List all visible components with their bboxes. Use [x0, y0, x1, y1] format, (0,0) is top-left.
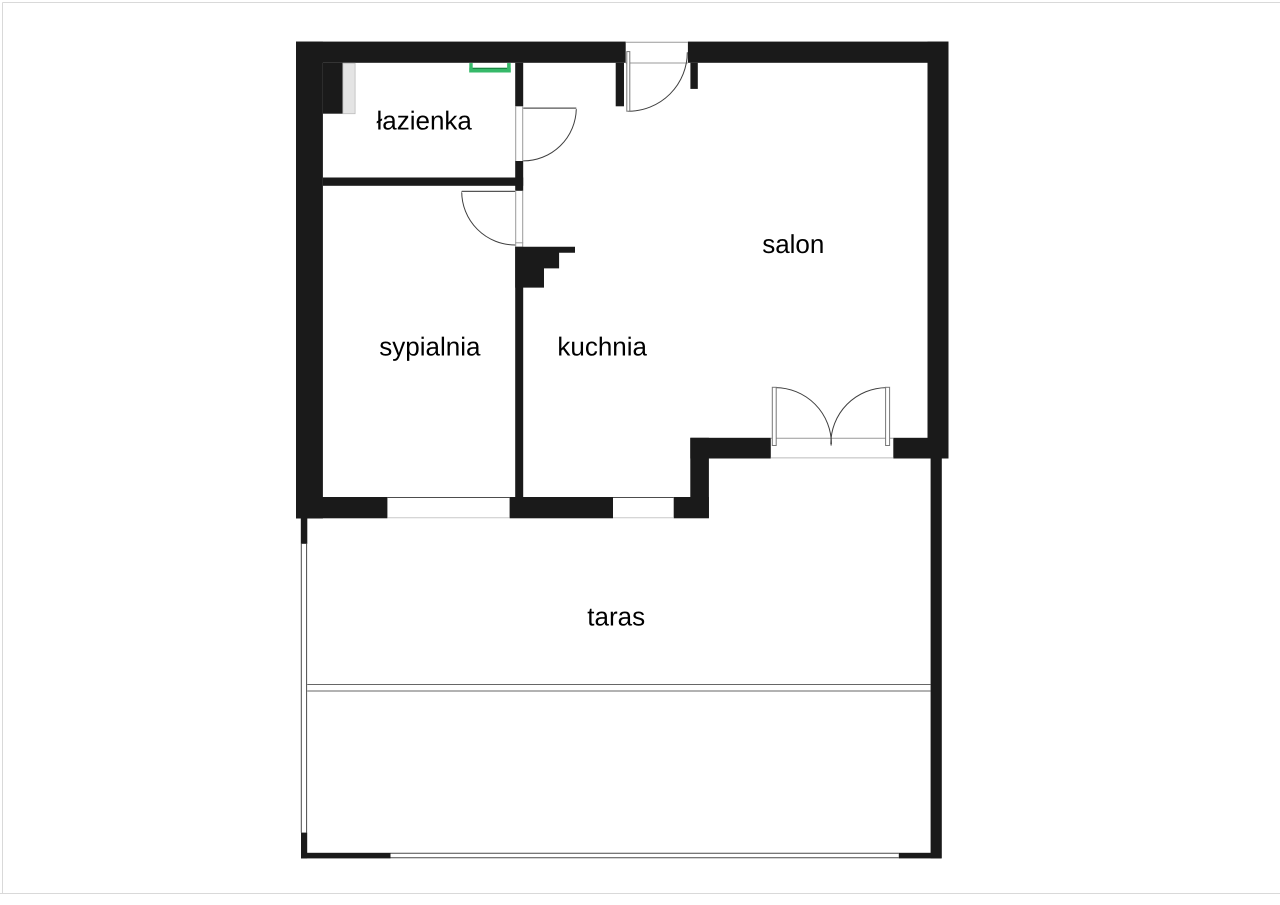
svg-text:salon: salon	[762, 229, 824, 259]
svg-text:taras: taras	[587, 601, 645, 631]
svg-text:łazienka: łazienka	[377, 106, 473, 136]
svg-text:kuchnia: kuchnia	[557, 332, 647, 362]
svg-text:sypialnia: sypialnia	[379, 332, 481, 362]
